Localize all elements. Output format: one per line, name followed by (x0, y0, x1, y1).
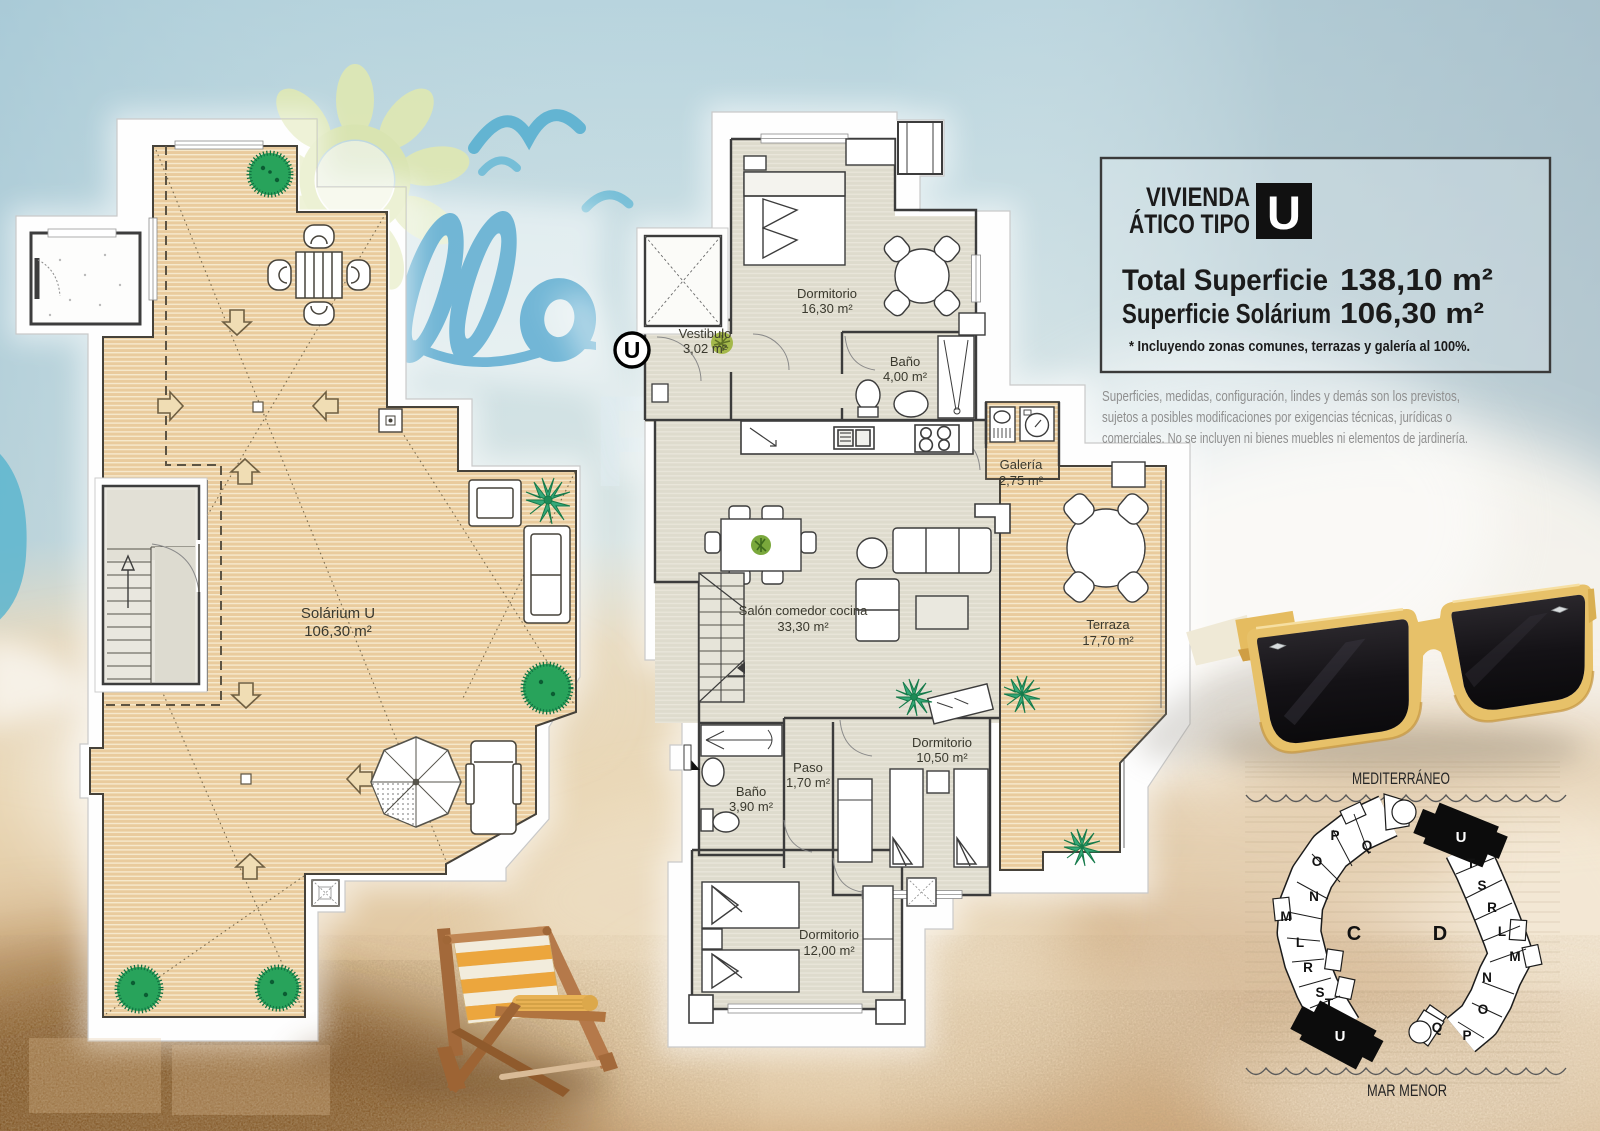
svg-text:D: D (1433, 923, 1447, 945)
svg-text:* Incluyendo zonas comunes, te: * Incluyendo zonas comunes, terrazas y g… (1129, 339, 1470, 355)
svg-text:O: O (1312, 854, 1323, 869)
svg-text:10,50 m²: 10,50 m² (916, 750, 968, 765)
svg-text:Dormitorio: Dormitorio (799, 927, 859, 942)
svg-text:P: P (1462, 1028, 1471, 1043)
svg-text:Paso: Paso (793, 760, 823, 775)
svg-text:1,70 m²: 1,70 m² (786, 775, 831, 790)
svg-text:33,30 m²: 33,30 m² (777, 619, 829, 634)
svg-text:Vestibulo: Vestibulo (679, 326, 732, 341)
svg-text:M: M (1509, 949, 1520, 964)
svg-text:Dormitorio: Dormitorio (797, 286, 857, 301)
svg-text:R: R (1303, 960, 1313, 975)
svg-text:R: R (1487, 900, 1497, 915)
svg-text:M: M (1280, 909, 1291, 924)
svg-text:U: U (1267, 186, 1301, 239)
svg-text:17,70 m²: 17,70 m² (1082, 633, 1134, 648)
svg-text:ÁTICO TIPO: ÁTICO TIPO (1129, 208, 1250, 239)
svg-text:3,02 m²: 3,02 m² (683, 341, 728, 356)
svg-text:C: C (1347, 923, 1361, 945)
svg-text:106,30 m²: 106,30 m² (1340, 298, 1484, 330)
svg-text:U: U (1335, 1028, 1346, 1045)
svg-text:Baño: Baño (736, 784, 766, 799)
svg-text:Solárium U: Solárium U (301, 605, 375, 622)
svg-text:S: S (1315, 985, 1324, 1000)
svg-text:Salón comedor cocina: Salón comedor cocina (739, 603, 868, 618)
svg-text:MEDITERRÁNEO: MEDITERRÁNEO (1352, 769, 1450, 788)
svg-text:P: P (1330, 828, 1339, 843)
svg-text:O: O (1478, 1002, 1489, 1017)
svg-text:Q: Q (1432, 1020, 1443, 1035)
svg-text:4,00 m²: 4,00 m² (883, 369, 928, 384)
svg-text:comerciales. No se incluyen ni: comerciales. No se incluyen ni bienes mu… (1102, 430, 1468, 447)
svg-text:T: T (1325, 996, 1334, 1011)
svg-text:sujetos a posibles modificacio: sujetos a posibles modificaciones por ex… (1102, 409, 1452, 426)
svg-text:Baño: Baño (890, 354, 920, 369)
svg-text:Dormitorio: Dormitorio (912, 735, 972, 750)
svg-text:U: U (624, 337, 641, 363)
svg-text:106,30 m²: 106,30 m² (304, 623, 372, 640)
svg-text:Q: Q (1362, 838, 1373, 853)
svg-text:12,00 m²: 12,00 m² (803, 943, 855, 958)
svg-text:N: N (1482, 970, 1492, 985)
svg-text:T: T (1467, 856, 1476, 871)
svg-text:3,90 m²: 3,90 m² (729, 799, 774, 814)
svg-text:MAR MENOR: MAR MENOR (1367, 1081, 1447, 1100)
svg-text:2,75 m²: 2,75 m² (999, 473, 1044, 488)
svg-text:Galería: Galería (1000, 457, 1043, 472)
svg-text:Superficie Solárium: Superficie Solárium (1122, 298, 1331, 329)
svg-text:U: U (1456, 829, 1467, 846)
svg-text:S: S (1477, 878, 1486, 893)
svg-text:L: L (1498, 924, 1506, 939)
svg-text:N: N (1309, 889, 1319, 904)
svg-text:Terraza: Terraza (1086, 617, 1130, 632)
svg-text:138,10 m²: 138,10 m² (1340, 262, 1493, 297)
svg-text:L: L (1296, 935, 1304, 950)
svg-text:16,30 m²: 16,30 m² (801, 301, 853, 316)
svg-text:Total Superficie: Total Superficie (1122, 264, 1328, 297)
svg-text:Superficies, medidas, configur: Superficies, medidas, configuración, lin… (1102, 388, 1460, 405)
svg-text:VIVIENDA: VIVIENDA (1146, 182, 1250, 212)
